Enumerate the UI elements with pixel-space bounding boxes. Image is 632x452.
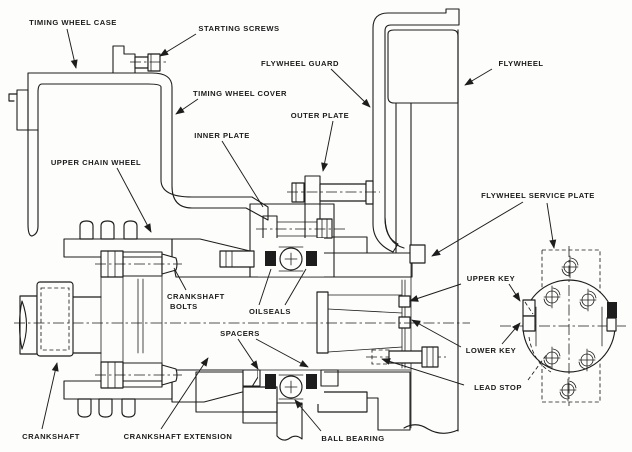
label-crankshaft-extension: CRANKSHAFT EXTENSION	[124, 432, 233, 441]
housing-band-bottom-left	[196, 372, 243, 412]
leader-upper-key-main	[410, 284, 461, 301]
flywheel-web	[396, 103, 411, 253]
outer-bolt-nut	[292, 183, 304, 202]
notch	[243, 387, 277, 412]
chain-roller	[124, 221, 137, 239]
outer-bolt-shaft	[320, 184, 366, 201]
screw-shaft	[135, 57, 148, 68]
lead-stop-hex	[422, 347, 438, 367]
service-plate-edge-view	[410, 245, 425, 263]
chain-roller	[101, 221, 114, 239]
lead-stop-shaft	[389, 351, 422, 363]
break-line	[404, 425, 458, 434]
leader-outer-plate	[323, 121, 333, 171]
housing-stud	[220, 251, 254, 267]
taper-lines	[328, 295, 402, 352]
chain-roller	[122, 399, 135, 417]
oil-seal-left	[265, 374, 276, 389]
leader-crankshaft-bolts	[174, 268, 186, 290]
label-crankshaft-bolts-1: CRANKSHAFT	[167, 292, 225, 301]
oil-seal-right	[306, 251, 317, 266]
case-hook	[9, 94, 17, 101]
engine-cross-section-diagram: TIMING WHEEL CASE STARTING SCREWS FLYWHE…	[0, 0, 632, 452]
label-lead-stop: LEAD STOP	[474, 383, 522, 392]
leader-starting-screws	[160, 34, 196, 56]
label-ball-bearing: BALL BEARING	[321, 434, 384, 443]
screw-symbol	[560, 379, 576, 401]
crankshaft-bolts-assembly	[95, 251, 182, 388]
case-left-flange	[17, 90, 28, 130]
screw-head	[148, 54, 160, 71]
starting-screw-assembly	[113, 46, 166, 73]
housing-column	[277, 403, 302, 440]
label-lower-key: LOWER KEY	[466, 346, 517, 355]
leader-flywheel-guard	[331, 69, 370, 107]
shaft-internals	[317, 292, 446, 367]
plate-gap	[278, 215, 305, 241]
right-key-light	[607, 318, 616, 331]
housing-lip	[243, 412, 277, 423]
leader-ball-bearing	[295, 400, 321, 431]
figure-page: TIMING WHEEL CASE STARTING SCREWS FLYWHE…	[0, 0, 632, 452]
housing-notch	[318, 392, 367, 412]
top-bearing-assembly	[176, 238, 402, 277]
screw-symbol	[562, 256, 578, 278]
label-inner-plate: INNER PLATE	[194, 131, 250, 140]
lower-key-end-view	[523, 316, 535, 331]
chain-roller	[99, 399, 112, 417]
label-flywheel-guard: FLYWHEEL GUARD	[261, 59, 339, 68]
label-oilseals: OILSEALS	[249, 307, 291, 316]
label-flywheel-service-plate: FLYWHEEL SERVICE PLATE	[481, 191, 595, 200]
crankshaft-part	[20, 252, 163, 375]
label-crankshaft: CRANKSHAFT	[22, 432, 80, 441]
upper-key-part	[399, 296, 410, 307]
crankshaft-tip	[20, 296, 37, 354]
crankshaft-end	[37, 282, 73, 356]
leader-crankshaft	[42, 363, 57, 429]
flywheel-guard-part	[373, 9, 459, 252]
leader-timing-wheel-cover	[176, 99, 198, 114]
label-upper-chain-wheel: UPPER CHAIN WHEEL	[51, 158, 141, 167]
label-crankshaft-bolts-2: BOLTS	[170, 302, 198, 311]
service-plate-end-view	[500, 246, 626, 406]
leader-service-plate-right	[547, 203, 554, 248]
label-upper-key: UPPER KEY	[467, 274, 515, 283]
label-starting-screws: STARTING SCREWS	[198, 24, 279, 33]
flywheel-part	[385, 30, 458, 433]
leader-spacers-left	[238, 339, 258, 369]
leader-flywheel	[465, 69, 492, 85]
chain-roller	[80, 221, 93, 239]
label-flywheel: FLYWHEEL	[498, 59, 543, 68]
plate-bolt-hex	[317, 219, 332, 238]
shaft-edges	[73, 297, 101, 353]
leader-upper-key-circle	[509, 284, 520, 301]
label-timing-wheel-case: TIMING WHEEL CASE	[29, 18, 117, 27]
label-spacers: SPACERS	[220, 329, 260, 338]
leader-spacers-right	[256, 339, 308, 367]
screw-boss	[113, 46, 135, 73]
right-key-dark	[607, 302, 617, 318]
leader-lower-key-main	[412, 320, 461, 347]
outer-bolt-end	[366, 181, 373, 204]
label-outer-plate: OUTER PLATE	[291, 111, 350, 120]
bottom-bearing-assembly	[176, 368, 410, 440]
chain-roller	[78, 399, 91, 417]
guard-wall	[373, 9, 459, 252]
flywheel-rim	[388, 30, 458, 103]
oil-seal-right	[306, 374, 317, 389]
guard-fillet	[385, 218, 404, 248]
leader-timing-wheel-case	[67, 29, 76, 68]
label-timing-wheel-cover: TIMING WHEEL COVER	[193, 89, 287, 98]
oil-seal-left	[265, 251, 276, 266]
housing-band-right	[318, 253, 412, 277]
collar	[317, 292, 328, 353]
housing-step-right	[318, 237, 367, 253]
leader-service-plate-left	[432, 202, 523, 256]
lower-key-part	[399, 317, 410, 328]
case-left-wall-lower	[28, 130, 38, 236]
